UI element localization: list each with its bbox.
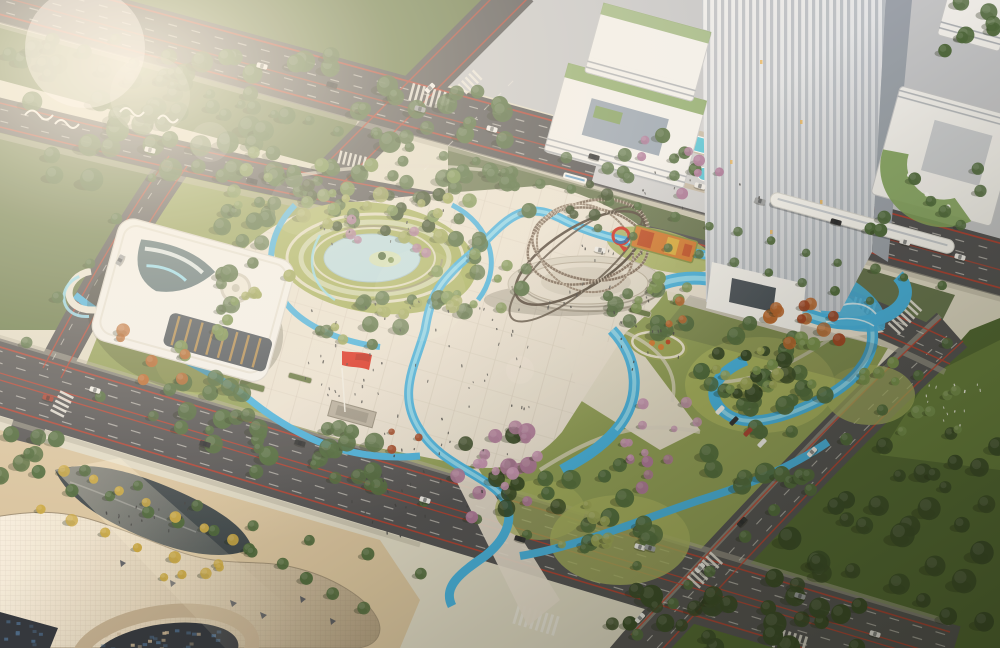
- aerial-park-rendering: [0, 0, 1000, 648]
- scene-canvas: [0, 0, 1000, 648]
- warm-tint: [0, 0, 1000, 648]
